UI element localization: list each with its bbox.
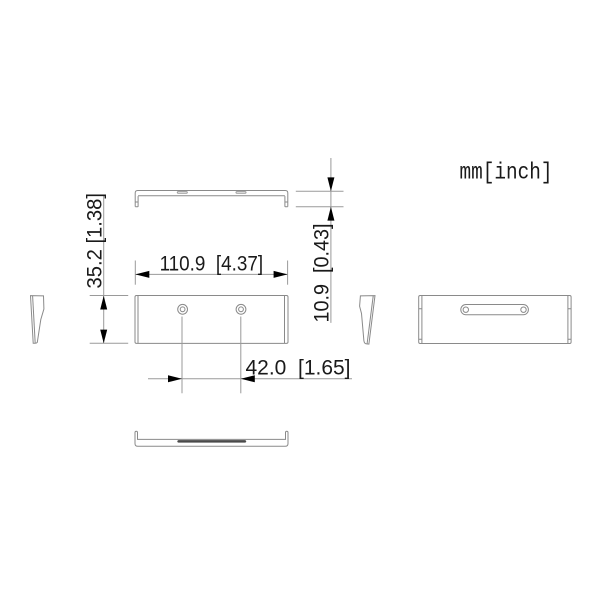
svg-text:42.0 [1.65]: 42.0 [1.65] — [246, 356, 351, 379]
svg-text:10.9 [0.43]: 10.9 [0.43] — [310, 224, 333, 323]
svg-text:35.2 [1.38]: 35.2 [1.38] — [84, 193, 107, 289]
svg-text:mm[inch]: mm[inch] — [460, 160, 553, 186]
svg-text:110.9 [4.37]: 110.9 [4.37] — [160, 253, 264, 276]
